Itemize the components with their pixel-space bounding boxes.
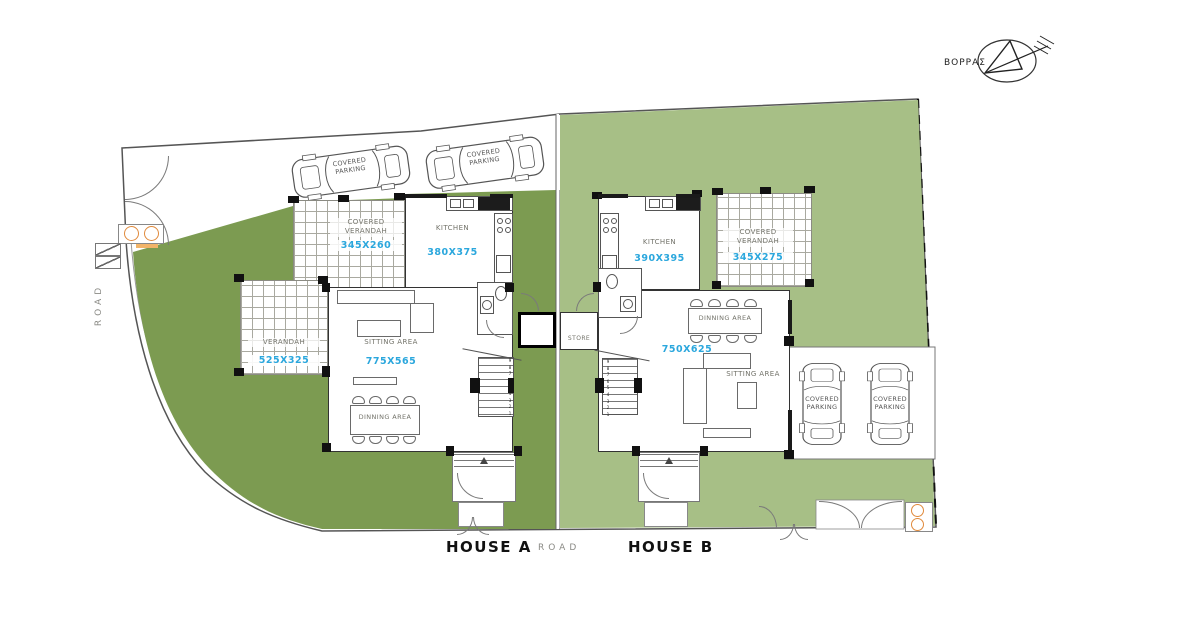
column xyxy=(338,195,349,202)
house-b-basin-bowl xyxy=(623,299,633,309)
house-a-kitchen-sink xyxy=(450,199,461,208)
column xyxy=(514,446,522,456)
house-a-verandah-label: VERANDAH xyxy=(248,338,320,347)
column xyxy=(322,366,330,377)
column xyxy=(760,187,771,194)
column xyxy=(634,378,642,393)
column xyxy=(712,281,721,289)
plot-divider xyxy=(556,114,560,529)
store-house-b xyxy=(560,312,598,350)
wall-segment xyxy=(490,194,513,198)
house-b-parking1-label: COVERED PARKING xyxy=(796,395,848,411)
house-b-kitchen-sink xyxy=(649,199,660,208)
chair xyxy=(726,299,739,307)
house-b-kitchen-sink xyxy=(662,199,673,208)
house-a-coffee-table xyxy=(357,320,401,337)
compass-rose-icon xyxy=(978,36,1054,82)
house-a-armchair xyxy=(410,303,434,333)
house-b-sofa xyxy=(703,353,751,369)
house-a-verandah-dim: 525X325 xyxy=(248,355,320,366)
wall-segment xyxy=(788,300,792,334)
chair xyxy=(403,396,416,404)
house-a-basin-bowl xyxy=(482,300,492,310)
house-b-covered-verandah-dim: 345X275 xyxy=(723,252,793,263)
chair xyxy=(386,396,399,404)
chair xyxy=(744,299,757,307)
house-b-parking2-label: COVERED PARKING xyxy=(864,395,916,411)
side-gate-left xyxy=(95,243,121,256)
house-a-title: HOUSE A xyxy=(446,538,532,556)
column xyxy=(593,282,601,292)
house-a-stove-burner xyxy=(497,227,503,233)
column xyxy=(394,193,405,200)
column xyxy=(322,443,331,452)
column xyxy=(234,274,244,282)
column xyxy=(288,196,299,203)
wall-segment xyxy=(598,194,628,198)
wall-segment xyxy=(676,194,700,198)
house-a-kitchen-sink xyxy=(463,199,474,208)
house-b-kitchen-label: KITCHEN xyxy=(622,238,697,247)
house-b-covered-verandah-label: COVERED VERANDAH xyxy=(723,228,793,247)
house-b-stove-burner xyxy=(611,227,617,233)
house-b-dinning-label: DINNING AREA xyxy=(692,314,758,323)
house-b-stairs-numbers: 9 8 7 6 5 4 3 2 1 xyxy=(604,359,612,418)
compass-label: ΒΟΡΡΑΣ xyxy=(944,58,986,68)
house-a-steps-arrow xyxy=(480,457,488,464)
column xyxy=(595,378,604,393)
house-b-stove-burner xyxy=(611,218,617,224)
utility-hatch xyxy=(136,244,158,248)
column xyxy=(470,378,480,393)
site-plan: 9 8 7 6 5 4 3 2 1 STORE 9 8 7 6 xyxy=(0,0,1200,634)
store-house-a xyxy=(518,312,556,348)
house-b-side-table xyxy=(737,382,757,409)
store-label: STORE xyxy=(560,335,598,343)
house-a-stove-burner xyxy=(505,227,511,233)
house-b-title: HOUSE B xyxy=(628,538,714,556)
house-b-toilet xyxy=(606,274,618,289)
house-b-sitting-label: SITTING AREA xyxy=(710,370,796,379)
house-b-kitchen-range xyxy=(676,197,700,210)
house-b-stove-burner xyxy=(603,227,609,233)
road-left-label: ROAD xyxy=(94,284,104,326)
road-bottom-label: ROAD xyxy=(538,543,580,553)
house-a-covered-verandah-label: COVERED VERANDAH xyxy=(330,218,402,237)
chair xyxy=(690,299,703,307)
house-a-covered-verandah-dim: 345X260 xyxy=(330,240,402,251)
house-a-stove-burner xyxy=(505,218,511,224)
house-a-dinning-label: DINNING AREA xyxy=(352,413,418,422)
house-a-kitchen-label: KITCHEN xyxy=(415,224,490,233)
column xyxy=(700,446,708,456)
house-b-kitchen-dim: 390X395 xyxy=(622,253,697,264)
column xyxy=(712,188,723,195)
gas-cylinder xyxy=(144,226,159,241)
column xyxy=(234,368,244,376)
chair xyxy=(352,396,365,404)
column xyxy=(446,446,454,456)
column xyxy=(322,283,330,292)
house-a-fridge xyxy=(496,255,511,273)
side-gate-left xyxy=(95,256,121,269)
column xyxy=(784,336,794,346)
house-a-kitchen-side-counter xyxy=(494,213,513,290)
column xyxy=(508,378,514,393)
house-b-main-dim: 750X625 xyxy=(648,344,726,355)
wall-segment xyxy=(788,410,792,450)
house-b-tv-bench xyxy=(703,428,751,438)
house-a-sitting-label: SITTING AREA xyxy=(352,338,430,347)
house-b-sofa-left xyxy=(683,368,707,424)
column xyxy=(804,186,815,193)
column xyxy=(784,450,794,459)
gas-cylinder xyxy=(911,504,924,517)
chair xyxy=(708,299,721,307)
house-b-steps-arrow xyxy=(665,457,673,464)
house-a-sitting-dim: 775X565 xyxy=(352,356,430,367)
wall-segment xyxy=(405,194,447,198)
house-a-tv-bench xyxy=(353,377,397,385)
gas-cylinder xyxy=(911,518,924,531)
house-a-kitchen-range xyxy=(478,197,510,210)
column xyxy=(505,283,514,292)
house-b-stove-burner xyxy=(603,218,609,224)
house-b-entry-landing xyxy=(644,502,688,527)
column xyxy=(632,446,640,456)
gas-cylinder xyxy=(124,226,139,241)
house-a-kitchen-dim: 380X375 xyxy=(415,247,490,258)
house-a-stove-burner xyxy=(497,218,503,224)
chair xyxy=(369,396,382,404)
house-a-sofa xyxy=(337,290,415,304)
column xyxy=(805,279,814,287)
